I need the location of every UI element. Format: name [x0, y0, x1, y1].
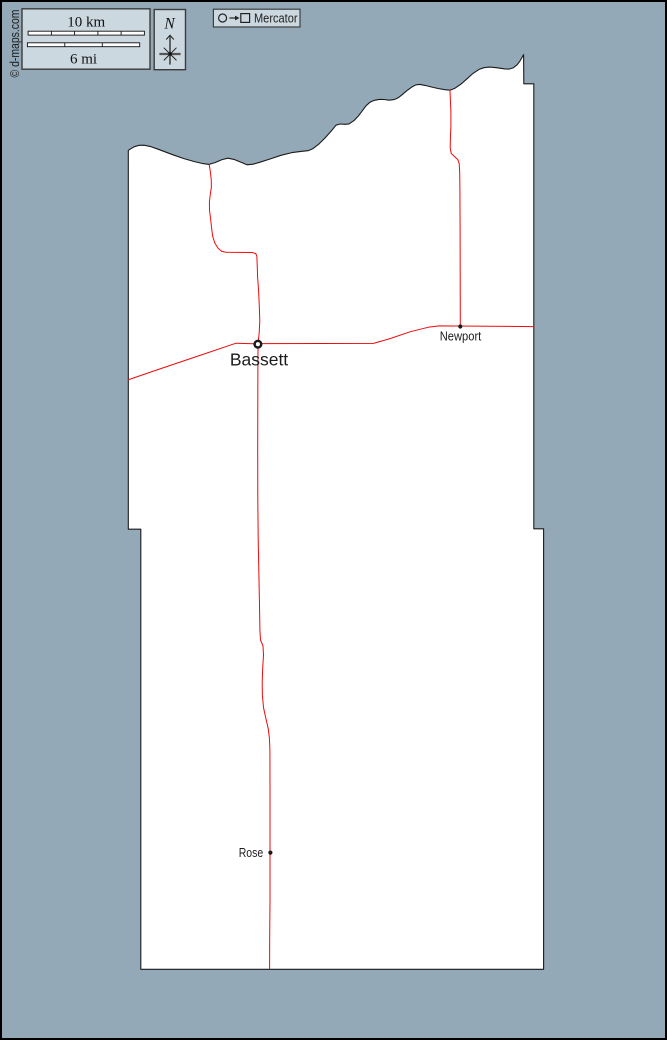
svg-text:10 km: 10 km — [67, 14, 105, 30]
svg-text:Newport: Newport — [440, 329, 482, 343]
svg-text:Rose: Rose — [239, 846, 264, 860]
svg-text:6 mi: 6 mi — [70, 51, 97, 67]
svg-text:Bassett: Bassett — [230, 350, 288, 370]
svg-text:© d-maps.com: © d-maps.com — [8, 10, 22, 78]
svg-text:Mercator: Mercator — [254, 12, 298, 26]
svg-text:N: N — [163, 16, 176, 33]
